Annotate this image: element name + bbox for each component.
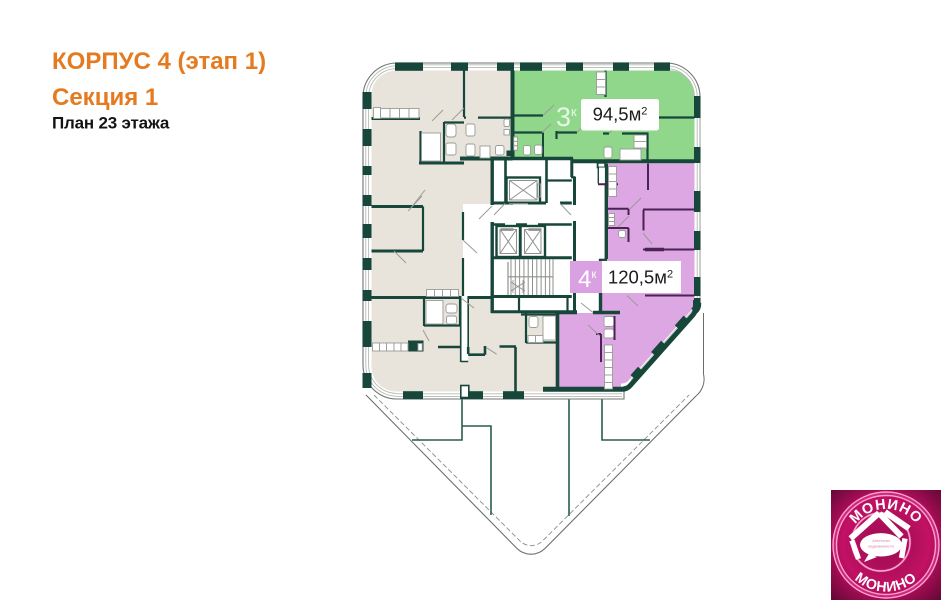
svg-text:120,5м2: 120,5м2 <box>608 267 673 288</box>
svg-text:недвижимости: недвижимости <box>868 544 894 548</box>
svg-text:94,5м2: 94,5м2 <box>593 104 648 125</box>
svg-text:План 23 этажа: План 23 этажа <box>52 114 170 133</box>
svg-text:Агентство: Агентство <box>872 539 889 543</box>
svg-text:КОРПУС 4 (этап 1): КОРПУС 4 (этап 1) <box>52 48 266 75</box>
svg-text:Секция 1: Секция 1 <box>52 84 158 111</box>
